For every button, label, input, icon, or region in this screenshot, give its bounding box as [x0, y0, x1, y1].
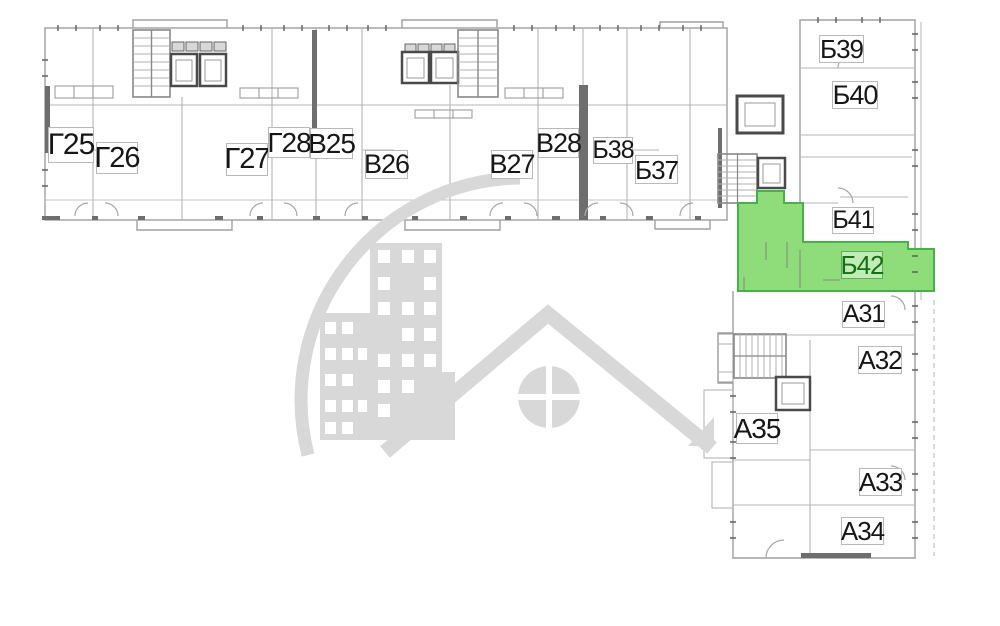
unit-label-v25[interactable]: В25	[310, 128, 353, 159]
unit-label-b39[interactable]: Б39	[819, 35, 864, 63]
floorplan-page: Г25 Г26 Г27 Г28 В25 В26 В27 В28 Б38 Б37 …	[0, 0, 1000, 626]
unit-label-a33[interactable]: А33	[859, 468, 902, 496]
unit-label-g26[interactable]: Г26	[96, 142, 138, 174]
unit-label-v28[interactable]: В28	[538, 128, 579, 158]
unit-label-g28[interactable]: Г28	[268, 127, 310, 158]
unit-label-b37[interactable]: Б37	[635, 155, 678, 184]
junction-stair-core	[718, 96, 785, 203]
stair-core-1	[133, 30, 226, 97]
elevator-machine-row	[172, 42, 226, 51]
unit-label-a35[interactable]: А35	[736, 413, 778, 444]
unit-label-b42-selected[interactable]: Б42	[841, 251, 883, 279]
unit-label-a31[interactable]: А31	[842, 301, 885, 328]
counter-bars	[55, 86, 563, 118]
lower-stair-core	[718, 334, 810, 410]
unit-label-b38[interactable]: Б38	[593, 137, 633, 164]
unit-label-v26[interactable]: В26	[365, 150, 408, 179]
unit-label-v27[interactable]: В27	[491, 150, 533, 179]
unit-label-b41[interactable]: Б41	[832, 207, 874, 234]
unit-label-a32[interactable]: А32	[858, 346, 902, 374]
unit-label-a34[interactable]: А34	[841, 517, 884, 545]
unit-label-g25[interactable]: Г25	[48, 127, 94, 163]
unit-label-b40[interactable]: Б40	[832, 81, 878, 109]
unit-label-g27[interactable]: Г27	[226, 143, 268, 176]
